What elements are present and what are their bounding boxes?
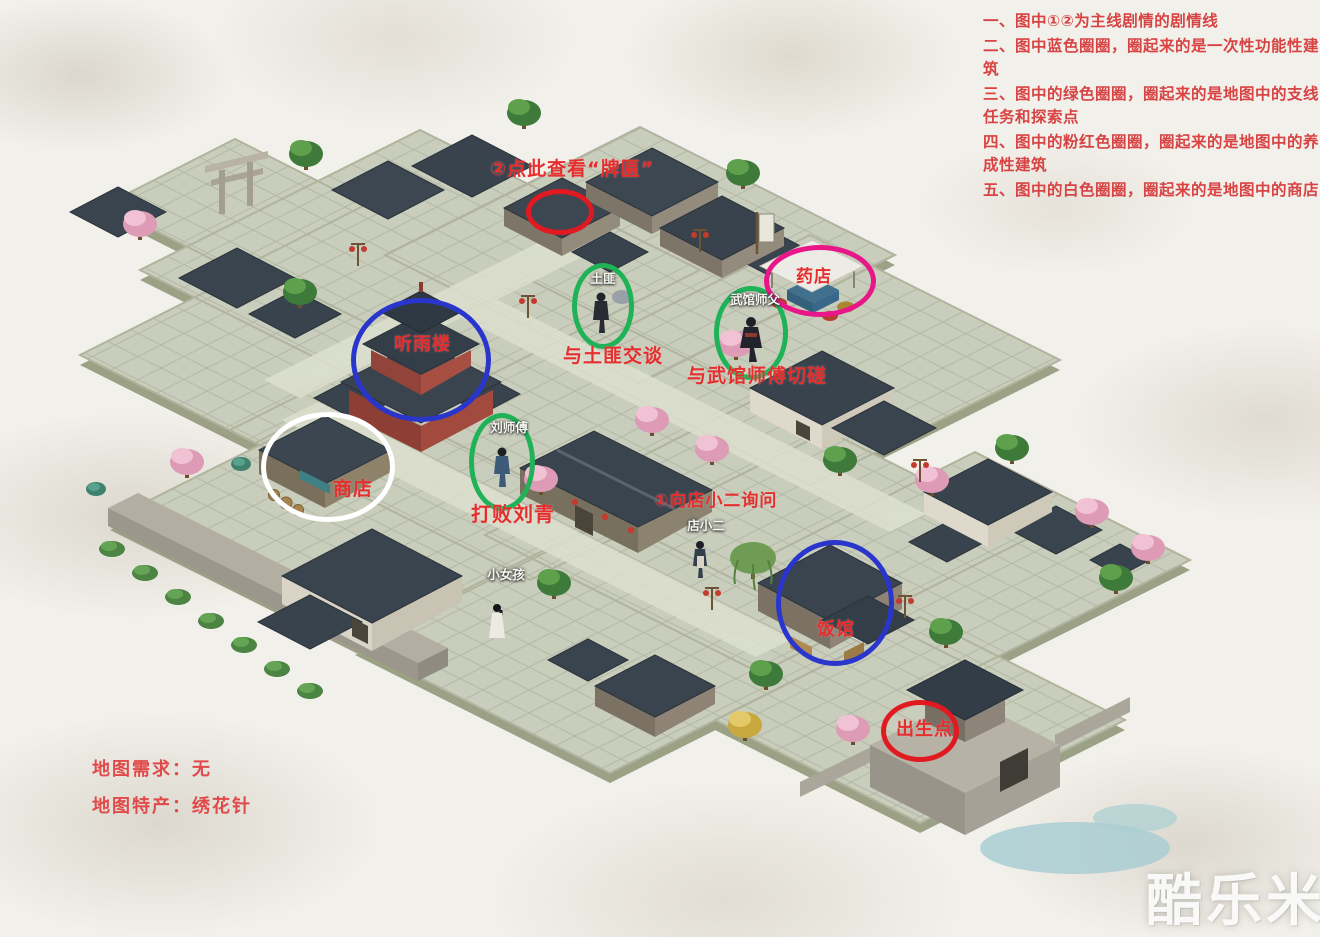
npc-name-tag: 土匪 [590,273,615,286]
legend-item: 五、图中的白色圈圈，圈起来的是地图中的商店 [983,179,1320,201]
map-label: 商店 [333,480,373,499]
legend-item: 三、图中的绿色圈圈，圈起来的是地图中的支线任务和探索点 [983,83,1320,128]
map-label: 饭馆 [817,621,855,639]
watermark: 酷乐米 [1146,856,1320,937]
npc-name-tag: 小女孩 [487,569,525,582]
legend-item: 二、图中蓝色圈圈，圈起来的是一次性功能性建筑 [983,35,1320,80]
map-label: 打败刘青 [471,504,555,524]
map-label: 与武馆师傅切磋 [687,367,827,386]
map-info: 地图需求：无地图特产：绣花针 [92,752,252,826]
circle-shop [261,412,395,522]
npc-name-tag: 刘师傅 [490,422,528,435]
map-info-line: 地图特产：绣花针 [92,789,252,826]
map-label: ①向店小二询问 [654,493,777,510]
npc-name-tag: 店小二 [687,520,725,533]
map-label: 与土匪交谈 [563,347,663,366]
legend: 一、图中①②为主线剧情的剧情线二、图中蓝色圈圈，圈起来的是一次性功能性建筑三、图… [983,10,1320,205]
map-label: 出生点 [896,721,953,739]
map-label: 听雨楼 [394,336,451,354]
map-label: 药店 [796,269,832,286]
legend-item: 四、图中的粉红色圈圈，圈起来的是地图中的养成性建筑 [983,131,1320,176]
circle-note-house [526,189,594,235]
map-label: ②点此查看“牌匾” [490,160,654,179]
guide-image: ②点此查看“牌匾”与土匪交谈与武馆师傅切磋药店听雨楼商店打败刘青①向店小二询问饭… [0,0,1320,937]
legend-item: 一、图中①②为主线剧情的剧情线 [983,10,1320,32]
map-info-line: 地图需求：无 [92,752,252,789]
circle-tower [351,298,491,422]
npc-name-tag: 武馆师父 [730,294,780,307]
circle-restaurant [776,540,894,666]
